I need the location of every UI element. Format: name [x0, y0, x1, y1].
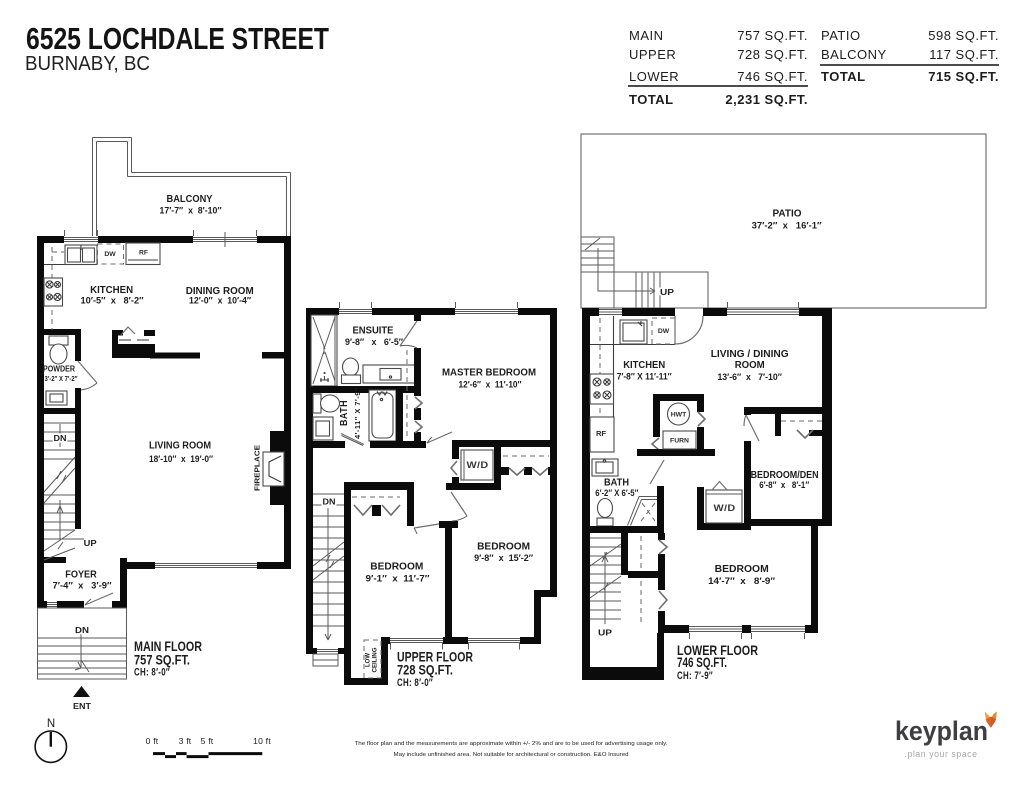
- svg-text:The floor plan and the measure: The floor plan and the measurements are …: [355, 741, 668, 747]
- svg-text:W/D: W/D: [467, 460, 489, 470]
- svg-text:MASTER BEDROOM: MASTER BEDROOM: [442, 368, 536, 379]
- svg-text:715 SQ.FT.: 715 SQ.FT.: [928, 69, 999, 84]
- svg-text:117 SQ.FT.: 117 SQ.FT.: [929, 47, 999, 62]
- svg-text:3 ft: 3 ft: [179, 736, 192, 746]
- svg-text:10′-5″ x 8′-2″: 10′-5″ x 8′-2″: [81, 295, 144, 306]
- svg-text:7′-4″ x 3′-9″: 7′-4″ x 3′-9″: [53, 580, 112, 591]
- svg-text:keyplan: keyplan: [895, 716, 988, 746]
- svg-text:7′-8″ X 11′-11″: 7′-8″ X 11′-11″: [617, 370, 672, 381]
- svg-text:0 ft: 0 ft: [146, 736, 159, 746]
- svg-text:LOW: LOW: [365, 653, 372, 667]
- svg-text:W/D: W/D: [714, 503, 736, 513]
- svg-text:CEILING: CEILING: [372, 647, 379, 672]
- svg-text:BALCONY: BALCONY: [821, 47, 887, 62]
- svg-text:TOTAL: TOTAL: [821, 69, 866, 84]
- svg-text:FIREPLACE: FIREPLACE: [253, 445, 262, 491]
- svg-text:3′-2″ X 7′-2″: 3′-2″ X 7′-2″: [45, 374, 78, 383]
- svg-text:6′-8″ x 8′-1″: 6′-8″ x 8′-1″: [759, 479, 809, 490]
- svg-text:DN: DN: [54, 433, 67, 443]
- svg-text:UP: UP: [598, 628, 612, 638]
- svg-text:BEDROOM: BEDROOM: [370, 562, 423, 573]
- svg-text:ENT: ENT: [73, 701, 92, 711]
- svg-text:BALCONY: BALCONY: [167, 194, 213, 205]
- svg-text:6′-2″ X 6′-5″: 6′-2″ X 6′-5″: [595, 487, 638, 498]
- svg-text:728 SQ.FT.: 728 SQ.FT.: [397, 663, 453, 678]
- svg-text:UP: UP: [84, 538, 97, 548]
- svg-text:May include unfinished area. N: May include unfinished area. Not suitabl…: [394, 752, 629, 758]
- svg-text:12′-6″ x 11′-10″: 12′-6″ x 11′-10″: [459, 379, 522, 390]
- svg-text:37′-2″ x 16′-1″: 37′-2″ x 16′-1″: [752, 220, 823, 231]
- svg-text:13′-6″ x 7′-10″: 13′-6″ x 7′-10″: [717, 371, 782, 382]
- svg-text:BEDROOM: BEDROOM: [477, 542, 530, 553]
- svg-text:757 SQ.FT.: 757 SQ.FT.: [737, 28, 808, 43]
- svg-text:9′-8″ x 15′-2″: 9′-8″ x 15′-2″: [474, 552, 533, 563]
- svg-text:18′-10″ x 19′-0″: 18′-10″ x 19′-0″: [149, 453, 213, 464]
- svg-text:TOTAL: TOTAL: [629, 92, 674, 107]
- svg-text:BEDROOM: BEDROOM: [715, 564, 769, 575]
- svg-text:CH: 7′-9″: CH: 7′-9″: [677, 670, 713, 682]
- svg-text:ROOM: ROOM: [735, 360, 765, 371]
- svg-text:MAIN: MAIN: [629, 28, 664, 43]
- svg-text:.plan your space: .plan your space: [905, 749, 978, 760]
- svg-text:DW: DW: [104, 251, 116, 258]
- svg-text:6525 LOCHDALE STREET: 6525 LOCHDALE STREET: [26, 22, 329, 56]
- svg-text:FURN: FURN: [670, 438, 689, 445]
- svg-text:746 SQ.FT.: 746 SQ.FT.: [677, 655, 727, 670]
- svg-text:598 SQ.FT.: 598 SQ.FT.: [928, 28, 999, 43]
- svg-text:N: N: [47, 718, 55, 730]
- svg-text:CH: 8′-0″: CH: 8′-0″: [134, 667, 170, 679]
- svg-text:HWT: HWT: [671, 412, 687, 419]
- svg-text:12′-0″ x 10′-4″: 12′-0″ x 10′-4″: [189, 295, 251, 306]
- svg-text:BATH: BATH: [339, 400, 350, 426]
- svg-text:RF: RF: [596, 429, 606, 438]
- svg-text:LIVING / DINING: LIVING / DINING: [711, 349, 789, 360]
- svg-text:ENSUITE: ENSUITE: [353, 326, 394, 337]
- svg-text:LIVING ROOM: LIVING ROOM: [149, 441, 211, 452]
- svg-text:5 ft: 5 ft: [201, 736, 214, 746]
- svg-text:2,231 SQ.FT.: 2,231 SQ.FT.: [725, 92, 808, 107]
- svg-text:UP: UP: [660, 287, 674, 297]
- svg-text:BURNABY, BC: BURNABY, BC: [25, 52, 150, 75]
- svg-text:PATIO: PATIO: [821, 28, 861, 43]
- svg-text:UPPER: UPPER: [629, 47, 676, 62]
- svg-text:17′-7″ x 8′-10″: 17′-7″ x 8′-10″: [160, 205, 222, 216]
- svg-text:9′-1″ x 11′-7″: 9′-1″ x 11′-7″: [366, 573, 431, 584]
- svg-text:746 SQ.FT.: 746 SQ.FT.: [737, 69, 808, 84]
- svg-text:DN: DN: [75, 625, 89, 635]
- svg-text:DN: DN: [323, 497, 336, 507]
- svg-text:728 SQ.FT.: 728 SQ.FT.: [737, 47, 808, 62]
- svg-text:RF: RF: [139, 250, 148, 257]
- svg-text:10 ft: 10 ft: [253, 736, 271, 746]
- svg-text:PATIO: PATIO: [773, 209, 802, 220]
- svg-text:POWDER: POWDER: [43, 364, 76, 374]
- svg-text:LOWER: LOWER: [629, 69, 679, 84]
- svg-text:14′-7″ x 8′-9″: 14′-7″ x 8′-9″: [708, 575, 776, 586]
- svg-text:4′-11″ X 7′-9″: 4′-11″ X 7′-9″: [353, 387, 362, 439]
- svg-text:757 SQ.FT.: 757 SQ.FT.: [134, 653, 190, 668]
- svg-text:DW: DW: [658, 328, 670, 335]
- svg-text:CH: 8′-0″: CH: 8′-0″: [397, 677, 433, 689]
- svg-text:9′-8″ x 6′-5″: 9′-8″ x 6′-5″: [345, 336, 403, 347]
